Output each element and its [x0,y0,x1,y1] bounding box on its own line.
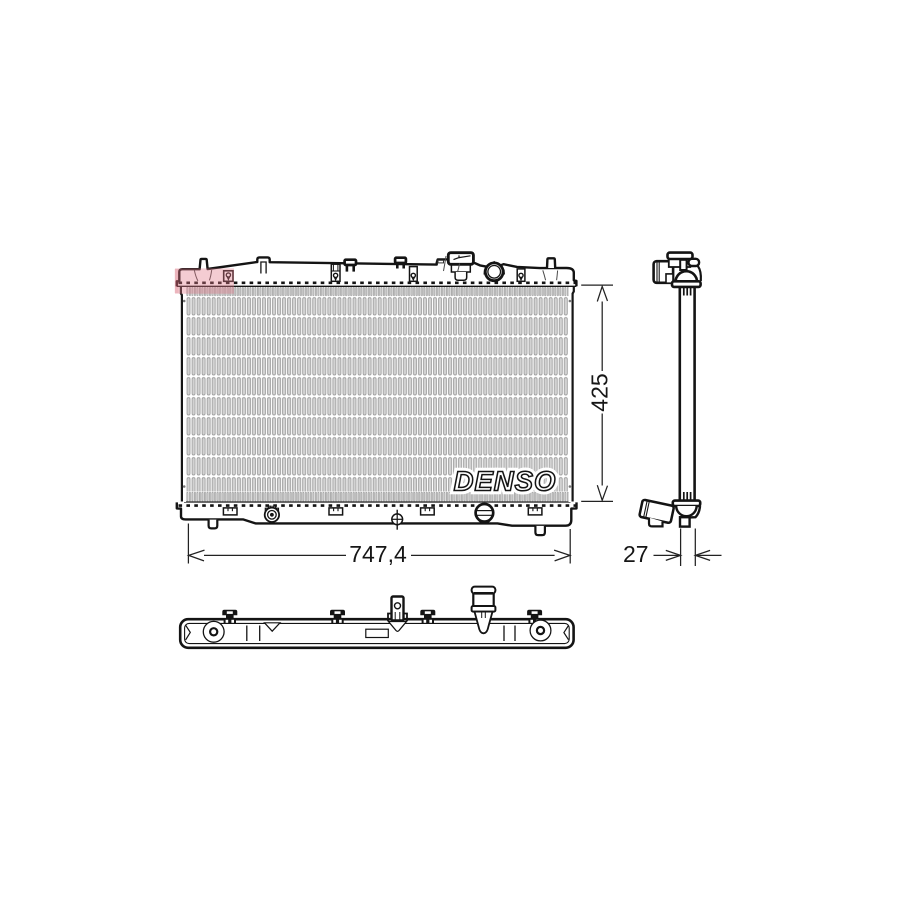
svg-text:27: 27 [623,541,649,567]
svg-text:DENSO: DENSO [454,466,557,497]
svg-text:747,4: 747,4 [349,541,407,567]
svg-text:425: 425 [586,373,612,411]
